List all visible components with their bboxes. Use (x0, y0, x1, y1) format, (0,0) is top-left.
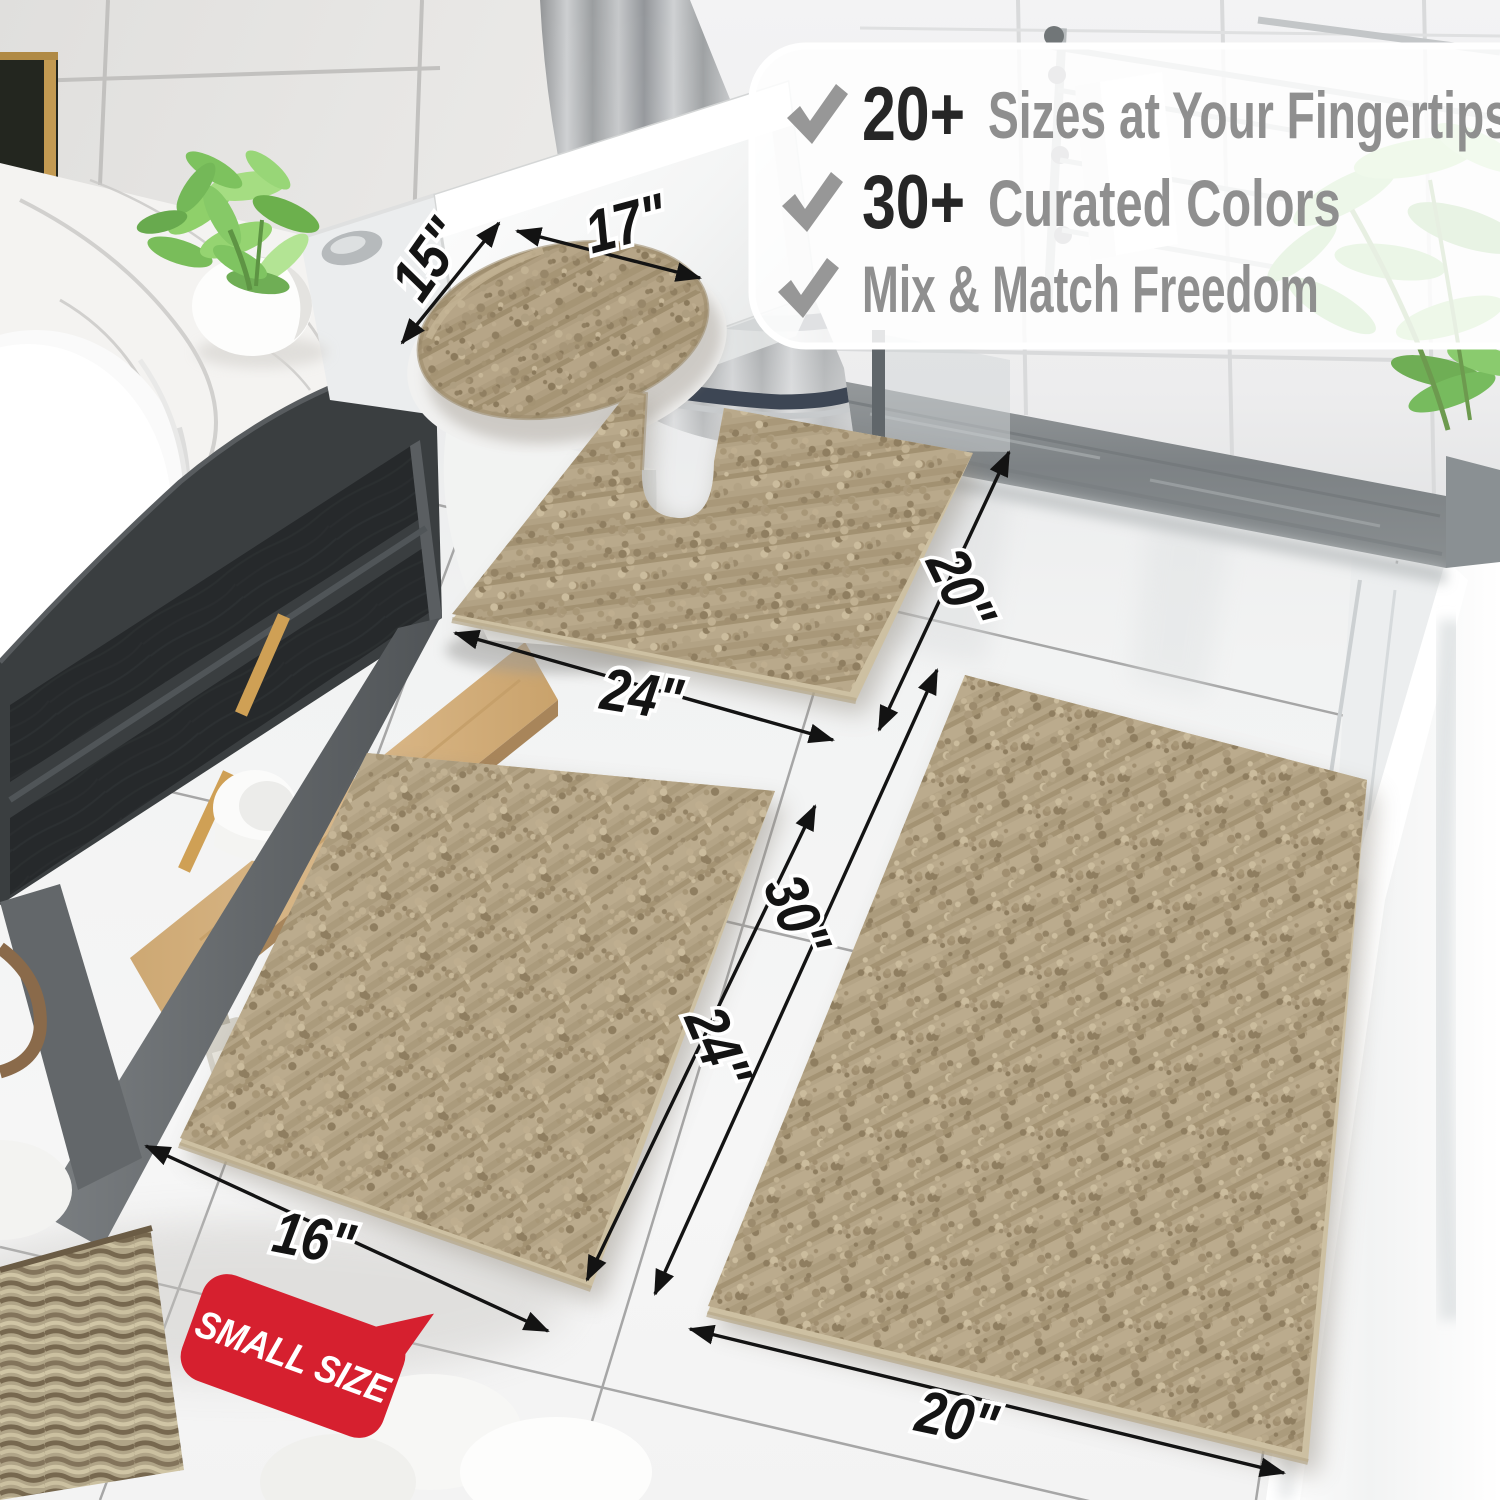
svg-text:Sizes at Your Fingertips: Sizes at Your Fingertips (988, 79, 1500, 153)
svg-text:30+: 30+ (862, 160, 965, 245)
svg-text:Mix & Match Freedom: Mix & Match Freedom (862, 252, 1319, 326)
svg-text:20+: 20+ (862, 72, 965, 157)
svg-text:Curated Colors: Curated Colors (988, 167, 1341, 241)
svg-text:24": 24" (596, 655, 688, 734)
